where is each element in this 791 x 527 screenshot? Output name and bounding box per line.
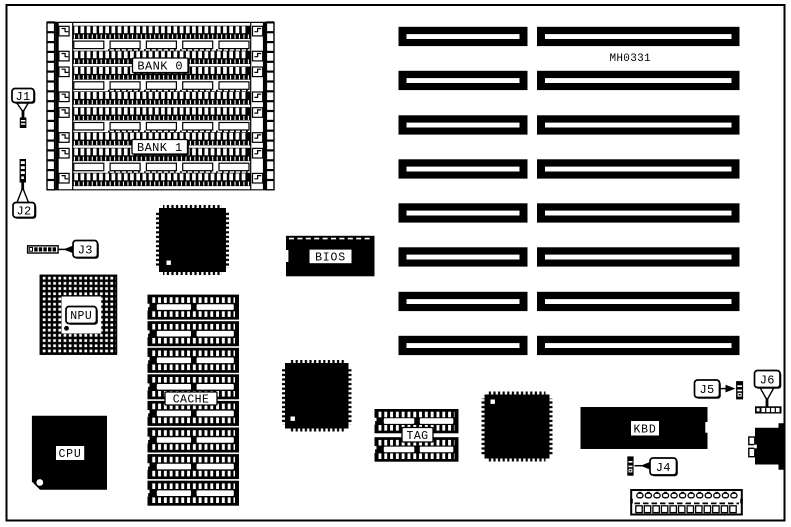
- svg-text:CPU: CPU: [58, 448, 81, 461]
- svg-text:J2: J2: [16, 204, 31, 218]
- svg-text:NPU: NPU: [70, 310, 92, 323]
- svg-text:J6: J6: [760, 373, 775, 387]
- svg-text:CACHE: CACHE: [173, 394, 210, 407]
- svg-text:BANK 1: BANK 1: [137, 141, 183, 155]
- svg-text:BIOS: BIOS: [315, 251, 346, 264]
- svg-text:J1: J1: [15, 90, 30, 104]
- svg-text:MH0331: MH0331: [610, 53, 652, 65]
- svg-text:J4: J4: [656, 461, 671, 475]
- svg-text:J5: J5: [699, 383, 714, 397]
- svg-text:J3: J3: [78, 243, 93, 257]
- svg-text:KBD: KBD: [633, 424, 656, 437]
- svg-text:TAG: TAG: [407, 430, 429, 443]
- svg-text:BANK 0: BANK 0: [137, 60, 183, 74]
